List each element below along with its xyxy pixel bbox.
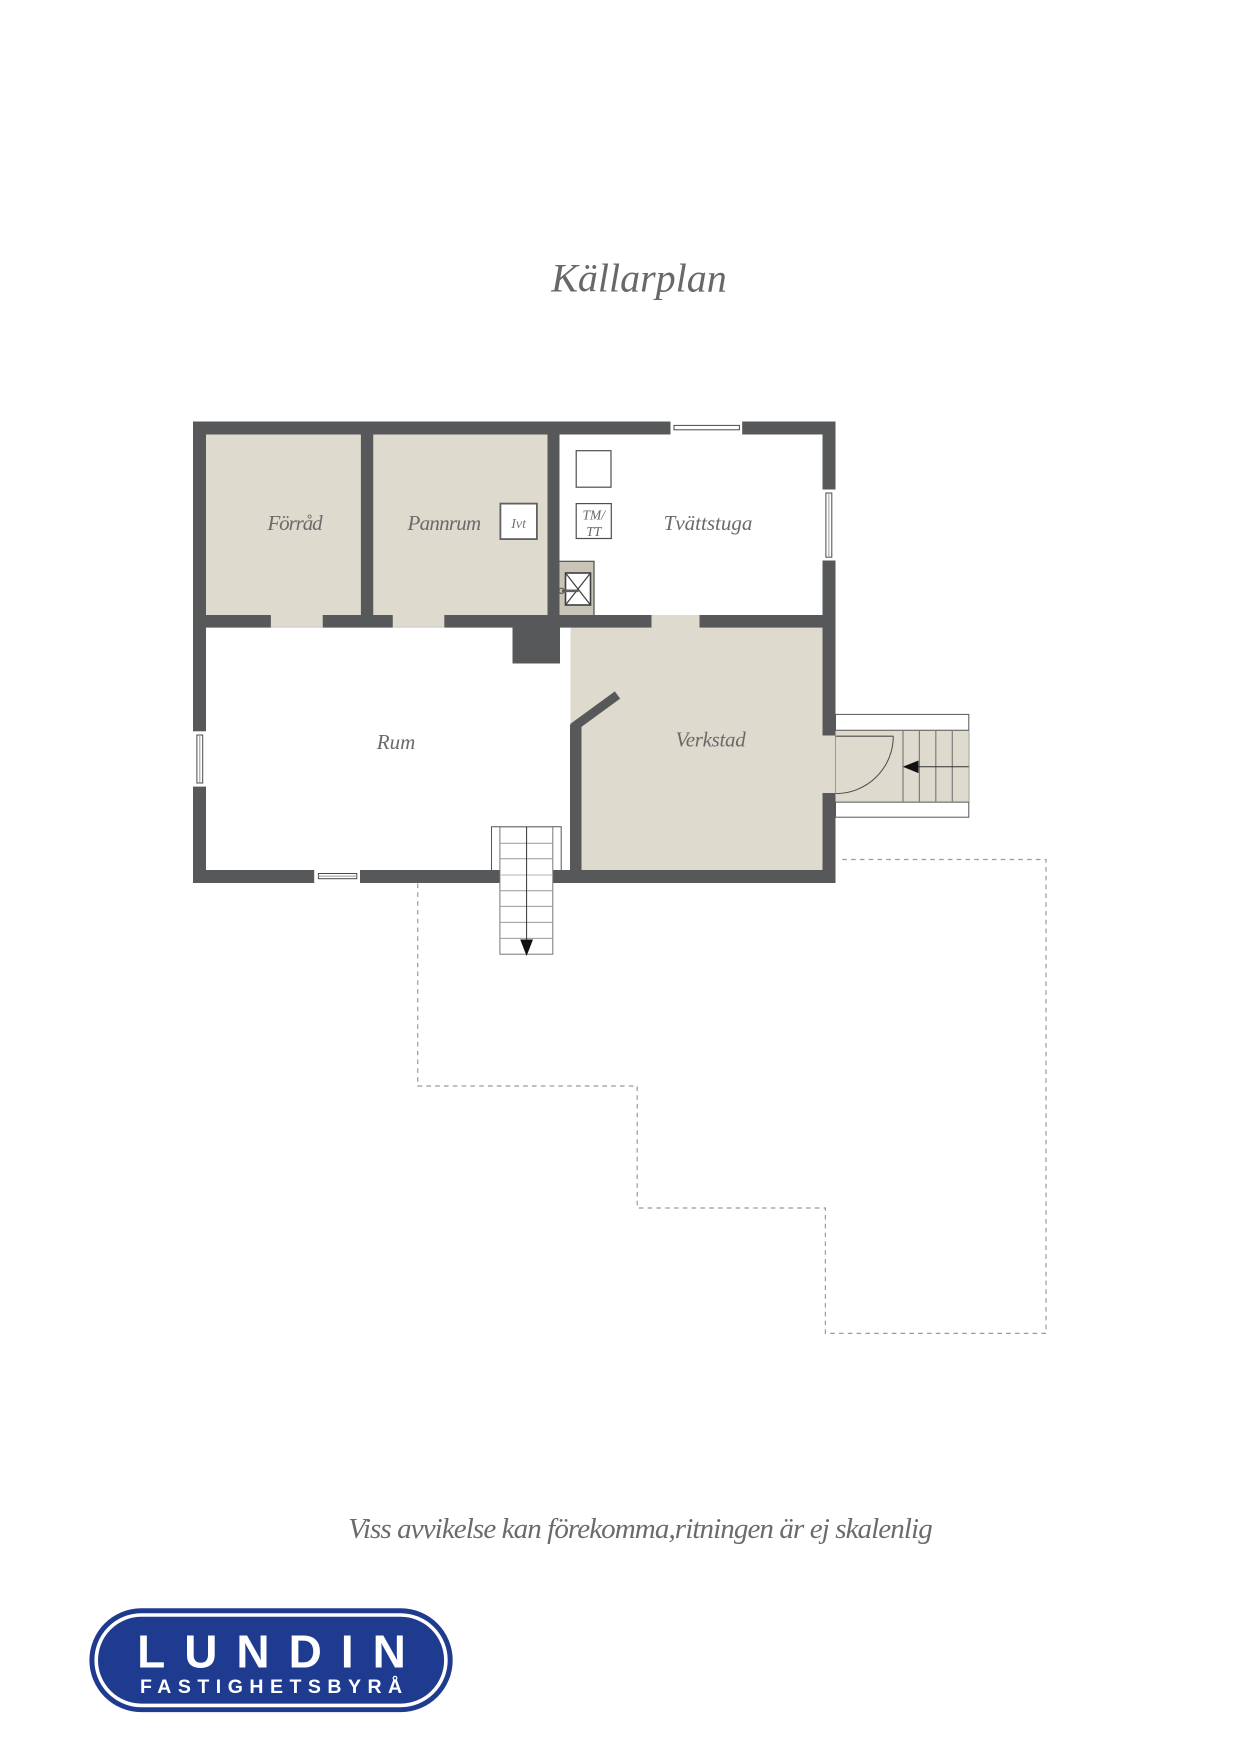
svg-text:Källarplan: Källarplan [550, 256, 727, 301]
svg-text:Rum: Rum [376, 730, 416, 754]
svg-text:Viss avvikelse kan förekomma,r: Viss avvikelse kan förekomma,ritningen ä… [348, 1513, 932, 1545]
svg-text:TM/: TM/ [583, 508, 607, 523]
svg-text:TT: TT [586, 524, 603, 539]
svg-text:Pannrum: Pannrum [407, 511, 482, 535]
svg-text:LUNDIN: LUNDIN [137, 1626, 425, 1678]
svg-text:Verkstad: Verkstad [676, 728, 747, 752]
svg-text:FASTIGHETSBYRÅ: FASTIGHETSBYRÅ [140, 1674, 409, 1698]
svg-text:Tvättstuga: Tvättstuga [664, 511, 753, 535]
svg-text:Förråd: Förråd [266, 511, 323, 535]
svg-text:Ivt: Ivt [510, 517, 527, 532]
